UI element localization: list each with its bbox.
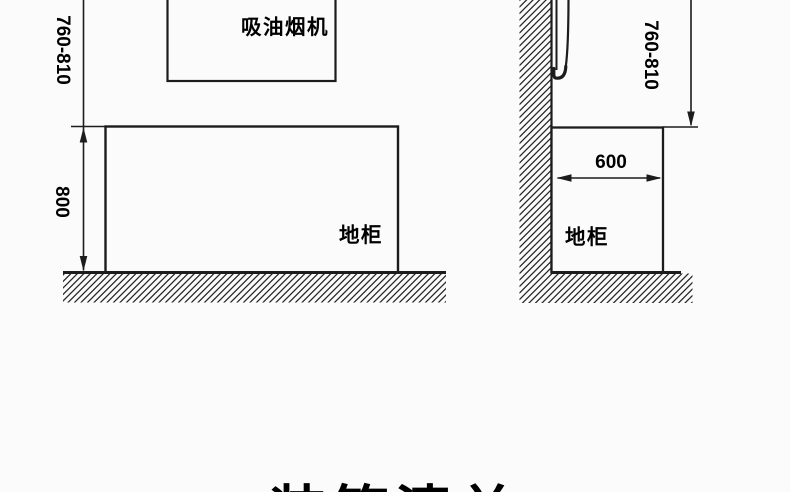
- diagram-linework: [0, 0, 790, 492]
- front-hood-box: [168, 0, 336, 81]
- side-hood-height-dim: 760-810: [638, 15, 662, 95]
- front-view: [63, 0, 446, 303]
- front-cabinet-height-dim: 800: [49, 162, 73, 242]
- side-cabinet-box: [552, 128, 664, 273]
- section-heading: 装箱清单: [0, 467, 790, 492]
- front-floor-hatch: [63, 274, 446, 303]
- side-floor-hatch: [551, 274, 693, 304]
- side-cabinet-depth-dim: 600: [581, 152, 641, 174]
- front-arrow-down-icon: [80, 256, 88, 271]
- hood-label: 吸油烟机: [241, 16, 329, 40]
- front-hood-height-dim: 760-810: [50, 10, 74, 90]
- hood-side-profile: [554, 0, 569, 78]
- installation-diagram: 吸油烟机 地柜 地柜 760-810 800 760-810 600 装箱清单: [0, 0, 790, 492]
- front-cabinet-box: [106, 127, 399, 273]
- side-wall-hatch: [520, 0, 552, 303]
- front-cabinet-label: 地柜: [339, 224, 383, 248]
- front-arrow-up-icon: [80, 128, 88, 143]
- side-cabinet-label: 地柜: [565, 226, 609, 250]
- side-arrow-down-icon: [687, 112, 695, 127]
